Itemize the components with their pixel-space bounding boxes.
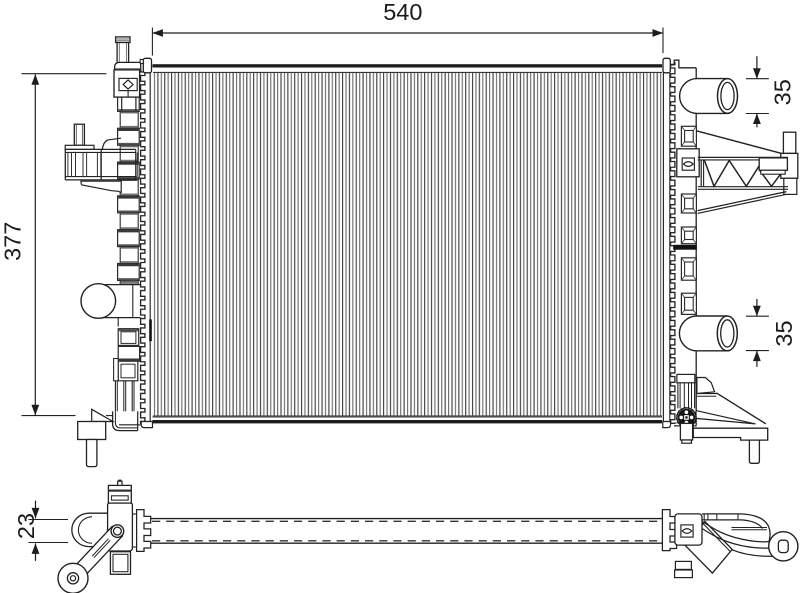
svg-text:23: 23 bbox=[13, 513, 39, 539]
svg-text:35: 35 bbox=[769, 79, 795, 105]
svg-text:540: 540 bbox=[383, 0, 422, 25]
svg-text:377: 377 bbox=[0, 222, 26, 261]
svg-text:35: 35 bbox=[771, 320, 797, 346]
